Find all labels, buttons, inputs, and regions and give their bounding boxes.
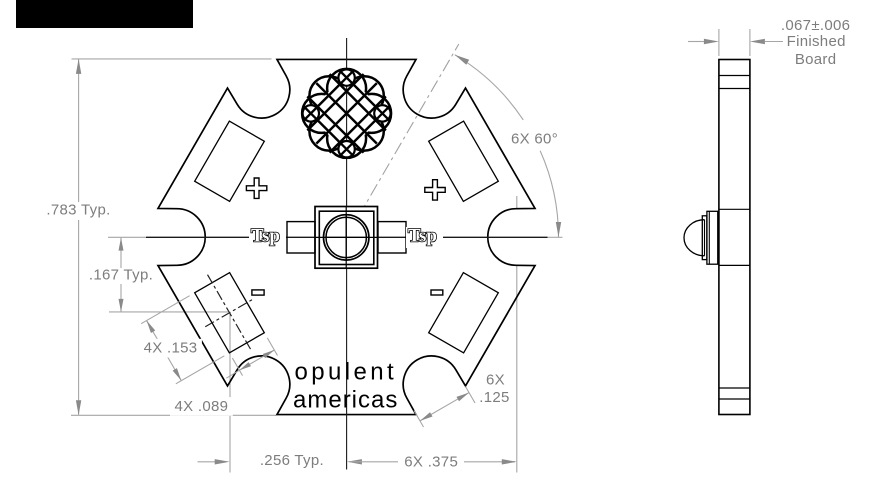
- svg-text:.067±.006: .067±.006: [781, 17, 850, 34]
- svg-text:.167 Typ.: .167 Typ.: [89, 266, 153, 283]
- svg-text:opulent: opulent: [295, 358, 398, 385]
- svg-text:4X .089: 4X .089: [174, 398, 228, 415]
- svg-text:.125: .125: [479, 389, 509, 406]
- svg-text:.256 Typ.: .256 Typ.: [260, 452, 324, 469]
- svg-text:americas: americas: [293, 386, 398, 413]
- svg-text:.783 Typ.: .783 Typ.: [46, 201, 110, 218]
- svg-text:Finished: Finished: [787, 33, 846, 50]
- svg-text:Tsp: Tsp: [408, 226, 437, 247]
- svg-text:Board: Board: [795, 51, 837, 68]
- svg-text:Tsp: Tsp: [251, 226, 280, 247]
- svg-text:6X 60°: 6X 60°: [511, 131, 558, 148]
- svg-text:6X: 6X: [486, 372, 505, 389]
- svg-text:4X .153: 4X .153: [144, 340, 198, 357]
- svg-text:6X .375: 6X .375: [404, 453, 458, 470]
